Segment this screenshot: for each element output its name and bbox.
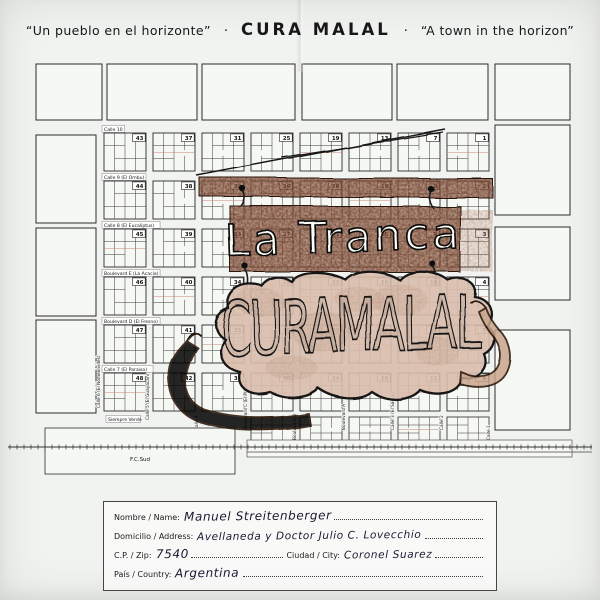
- svg-text:47: 47: [136, 328, 144, 334]
- paper-crease: [296, 0, 305, 72]
- dotted-leader: [425, 528, 483, 539]
- svg-text:Boulevard D (El Fresno): Boulevard D (El Fresno): [104, 319, 158, 325]
- city-block: 46: [104, 277, 146, 315]
- address-form: Nombre / Name: Manuel Streitenberger Dom…: [103, 501, 497, 591]
- city-block: 37: [153, 133, 195, 171]
- form-row-address: Domicilio / Address: Avellaneda y Doctor…: [114, 528, 486, 547]
- city-block: 39: [153, 229, 195, 267]
- city-block: [349, 417, 391, 441]
- city-block: 1: [447, 133, 489, 171]
- svg-text:31: 31: [234, 136, 242, 142]
- svg-text:25: 25: [283, 136, 291, 142]
- city-value: Coronel Suarez: [344, 549, 432, 562]
- address-value: Avellaneda y Doctor Julio C. Lovecchio: [197, 529, 421, 543]
- svg-text:44: 44: [136, 184, 144, 190]
- svg-text:37: 37: [185, 136, 193, 142]
- la-tranca-text: La Tranca: [224, 208, 463, 267]
- city-block: 31: [202, 133, 244, 171]
- svg-text:Calle 2: Calle 2: [439, 415, 445, 430]
- svg-text:1: 1: [483, 136, 487, 142]
- svg-text:Calle 9 (El Ombu): Calle 9 (El Ombu): [104, 175, 145, 181]
- city-block: 40: [153, 277, 195, 315]
- svg-text:39: 39: [185, 232, 193, 238]
- name-value: Manuel Streitenberger: [184, 508, 332, 524]
- dotted-leader: [334, 509, 483, 520]
- town-map: 4337312519137144383226201482453933272115…: [0, 0, 600, 500]
- svg-text:19: 19: [332, 136, 340, 142]
- svg-text:40: 40: [185, 280, 193, 286]
- svg-text:Boulevard A: Boulevard A: [341, 404, 347, 430]
- city-block: 38: [153, 181, 195, 219]
- cura-malal-text: CURAMALAL: [219, 279, 482, 374]
- scanned-page: “Un pueblo en el horizonte” · CURA MALAL…: [0, 0, 600, 600]
- city-block: 44: [104, 181, 146, 219]
- zip-label: C.P. / Zip:: [114, 551, 152, 560]
- city-label: Ciudad / City:: [286, 551, 340, 560]
- svg-text:46: 46: [136, 280, 144, 286]
- svg-text:7: 7: [434, 136, 438, 142]
- svg-text:45: 45: [136, 232, 144, 238]
- dotted-leader: [191, 547, 283, 558]
- address-label: Domicilio / Address:: [114, 532, 193, 541]
- svg-text:Calle 8 (El Eucaliptus): Calle 8 (El Eucaliptus): [104, 223, 154, 229]
- city-block: 25: [251, 133, 293, 171]
- city-block: 43: [104, 133, 146, 171]
- name-label: Nombre / Name:: [114, 513, 180, 522]
- svg-text:Calle 7 (El Paraiso): Calle 7 (El Paraiso): [104, 367, 147, 373]
- svg-text:F.C.Sud: F.C.Sud: [130, 457, 150, 463]
- svg-text:Calle 6 (El Nomeolvides): Calle 6 (El Nomeolvides): [96, 355, 102, 408]
- city-block: 13: [349, 133, 391, 171]
- svg-text:Siempre Verde: Siempre Verde: [108, 417, 142, 423]
- form-row-zip-city: C.P. / Zip: 7540 Ciudad / City: Coronel …: [114, 547, 486, 566]
- city-block: 36: [202, 373, 244, 411]
- country-value: Argentina: [175, 566, 239, 581]
- svg-text:Boulevard E (La Acacia): Boulevard E (La Acacia): [104, 271, 159, 277]
- form-row-country: País / Country: Argentina: [114, 566, 486, 585]
- svg-text:CURAMALAL: CURAMALAL: [219, 279, 482, 374]
- svg-text:38: 38: [185, 184, 193, 190]
- svg-text:48: 48: [136, 376, 144, 382]
- city-block: [447, 417, 489, 441]
- city-block: 45: [104, 229, 146, 267]
- zip-value: 7540: [155, 547, 188, 561]
- form-row-name: Nombre / Name: Manuel Streitenberger: [114, 509, 486, 528]
- svg-text:Calle 10: Calle 10: [104, 127, 123, 133]
- dotted-leader: [435, 547, 483, 558]
- svg-text:Calle 1: Calle 1: [486, 425, 492, 440]
- dotted-leader: [243, 566, 483, 577]
- svg-text:4: 4: [483, 280, 487, 286]
- svg-text:43: 43: [136, 136, 144, 142]
- city-block: 47: [104, 325, 146, 363]
- svg-text:Calle 5 (El Guayacan): Calle 5 (El Guayacan): [145, 373, 151, 420]
- city-block: [398, 417, 440, 441]
- city-block: 48: [104, 373, 146, 411]
- country-label: País / Country:: [114, 570, 171, 579]
